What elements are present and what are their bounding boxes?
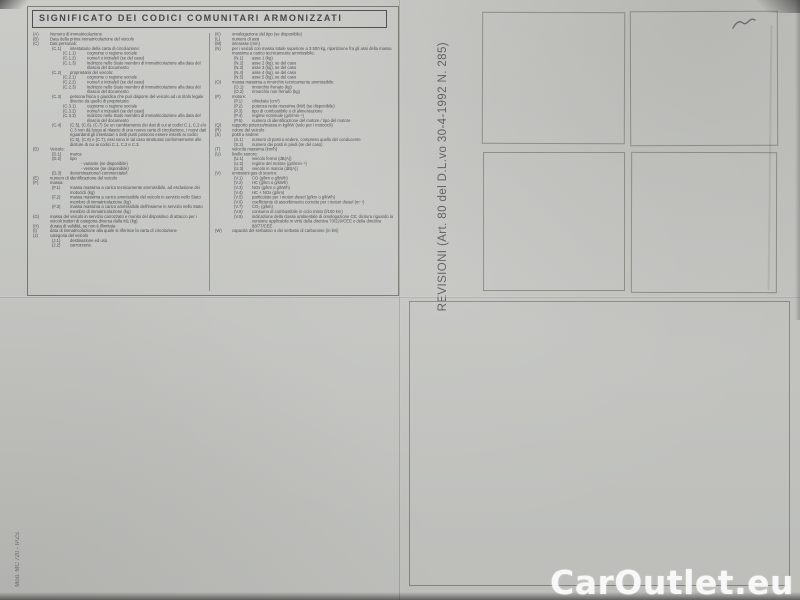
legend-entry-code: (F.3) [52, 205, 70, 215]
print-code: Mod. MC 720 - IPZS [12, 528, 24, 590]
legend-entry-code: (P) [215, 94, 232, 99]
legend-entry-code: (G) [33, 214, 50, 224]
revisions-sidebar-label: REVISIONI (Art. 80 del D.L.vo 30-4-1992 … [428, 48, 458, 306]
pen-squiggle-icon [731, 16, 757, 32]
legend-entry-code: (C) [33, 42, 50, 47]
legend-entry-text: massa del veicolo in servizio carrozzato… [50, 214, 208, 224]
legend-entry-text: indicazione della classe ambientale di o… [252, 214, 394, 228]
legend-entry-text: capacità del serbatoio o dei serbatoi di… [232, 229, 394, 234]
legend-entry: (J.2)carrozzeria [52, 243, 208, 248]
legend-entry-code: (C.3) [52, 94, 70, 104]
legend-entry: (G)massa del veicolo in servizio carrozz… [33, 214, 208, 224]
photo-corner-shadow-tr [748, 0, 800, 13]
legend-entry-text: indirizzo nello Stato membro di immatric… [87, 61, 208, 71]
legend-entry-text: (C.5), (C.6), (C.7) Se un cambiamento de… [70, 123, 208, 147]
legend-entry-text: indirizzo nello Stato membro di immatric… [87, 85, 208, 95]
watermark: CarOutlet.eu [550, 563, 794, 600]
legend-column-right: (K)omologazione del tipo (se disponibile… [215, 32, 394, 292]
legend-entry-code: (D.2) [52, 157, 70, 162]
photo-corner-shadow-tl [0, 0, 34, 9]
legend-entry: (C.2.3)indirizzo nello Stato membro di i… [63, 85, 208, 95]
legend-entry: (W)capacità del serbatoio o dei serbatoi… [215, 229, 394, 234]
legend-entry-code: (U) [215, 152, 232, 157]
legend-entry-code: (J) [33, 233, 50, 238]
legend-entry-code: (V) [215, 171, 232, 176]
legend-entry-code: (W) [215, 229, 232, 234]
legend-entry: (V.9)indicazione della classe ambientale… [234, 214, 394, 228]
legend-entry-text: carrozzeria [70, 243, 208, 248]
revision-stamp-box-1 [482, 12, 625, 144]
horizontal-fold-crease [0, 296, 800, 298]
revision-stamp-box-4 [631, 152, 777, 293]
legend-entry-code: (V.9) [234, 214, 252, 228]
legend-entry-code: (N) [215, 46, 232, 56]
legend-entry-code: (C.4) [52, 123, 70, 147]
legend-entry: (C.3)persona fisica o giuridica che può … [52, 94, 208, 104]
legend-entry-code: (F) [33, 181, 50, 186]
vertical-fold-crease [399, 0, 401, 600]
legend-entry: (C.4)(C.5), (C.6), (C.7) Se un cambiamen… [52, 123, 208, 147]
photographed-document: SIGNIFICATO DEI CODICI COMUNITARI ARMONI… [0, 0, 800, 600]
column-divider [209, 33, 210, 291]
legend-entry-text: persona fisica o giuridica che può dispo… [70, 94, 208, 104]
revision-stamp-box-3 [483, 152, 625, 291]
photo-edge-shadow-right [795, 0, 800, 320]
legend-column-left: (A)Numero di immatricolazione(B)Data del… [33, 32, 208, 292]
legend-entry-code: (D) [33, 147, 50, 152]
legend-entry-code: (C.2.3) [63, 85, 87, 95]
legend-entry-code: (S) [215, 133, 232, 138]
legend-entry-code: (C.1.3) [63, 61, 87, 71]
legend-entry-code: (O) [215, 80, 232, 85]
legend-entry-code: (J.2) [52, 243, 70, 248]
legend-panel: SIGNIFICATO DEI CODICI COMUNITARI ARMONI… [27, 6, 399, 296]
revision-large-box [409, 301, 790, 586]
legend-entry: (C.1.3)indirizzo nello Stato membro di i… [63, 61, 208, 71]
legend-title: SIGNIFICATO DEI CODICI COMUNITARI ARMONI… [32, 10, 387, 28]
legend-entry: (F.3)massa massima a carico ammissibile … [52, 205, 208, 215]
legend-entry-text: massa massima a carico ammissibile dell'… [70, 205, 208, 215]
